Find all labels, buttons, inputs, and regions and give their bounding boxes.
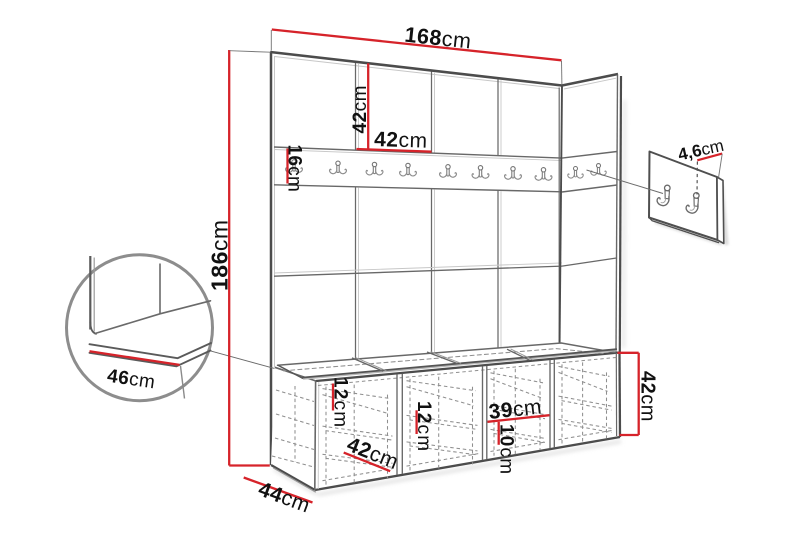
svg-text:12cm: 12cm [413, 401, 434, 452]
svg-text:186cm: 186cm [207, 219, 233, 291]
svg-text:42cm: 42cm [637, 371, 659, 422]
svg-text:12cm: 12cm [330, 377, 351, 428]
svg-text:42cm: 42cm [374, 128, 428, 153]
svg-text:42cm: 42cm [350, 85, 371, 133]
svg-text:16cm: 16cm [284, 145, 305, 193]
svg-text:10cm: 10cm [495, 424, 516, 475]
